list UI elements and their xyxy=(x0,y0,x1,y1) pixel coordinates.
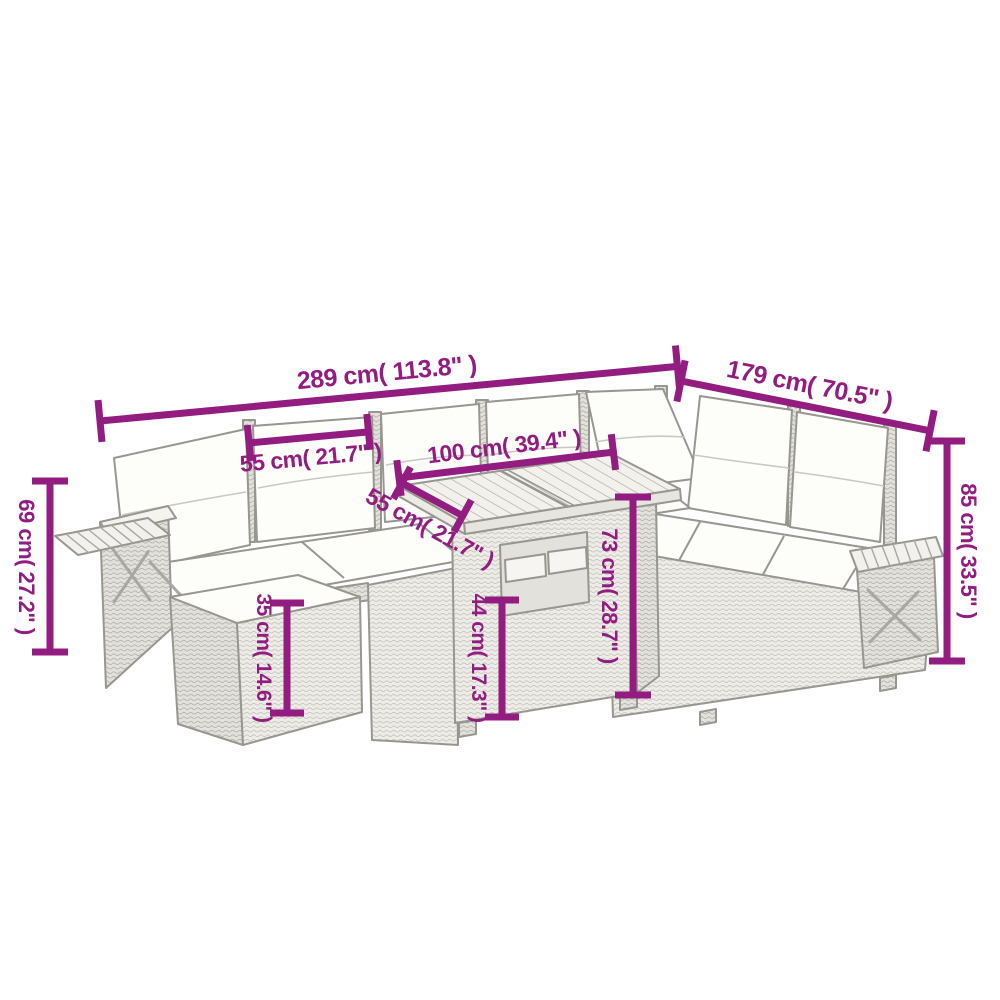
diagram-canvas: 289 cm( 113.8" ) 179 cm( 70.5" ) 55 cm( … xyxy=(0,0,1000,1000)
back-cushion xyxy=(688,396,792,525)
dimension-arm-height: 69 cm( 27.2" ) xyxy=(14,481,68,652)
right-sofa-foot xyxy=(700,709,716,725)
dimension-diagram: 289 cm( 113.8" ) 179 cm( 70.5" ) 55 cm( … xyxy=(0,0,1000,1000)
mid-front-frame xyxy=(368,568,458,745)
dimension-tick xyxy=(98,400,102,442)
back-height-label: 85 cm( 33.5" ) xyxy=(956,483,981,619)
table-height-label: 73 cm( 28.7" ) xyxy=(597,528,622,664)
table-foot xyxy=(459,720,476,737)
dimension-tick xyxy=(611,434,615,470)
table-right-face xyxy=(633,492,659,693)
back-cushion xyxy=(790,412,888,542)
arm-height-label: 69 cm( 27.2" ) xyxy=(14,499,39,635)
ottoman-height-label: 35 cm( 14.6" ) xyxy=(252,593,275,722)
right-sofa-foot xyxy=(880,675,896,691)
right-armrest xyxy=(850,537,943,668)
table-base-height-label: 44 cm( 17.3" ) xyxy=(467,593,490,722)
stored-pad xyxy=(505,554,546,582)
dimension-tick xyxy=(926,410,934,451)
